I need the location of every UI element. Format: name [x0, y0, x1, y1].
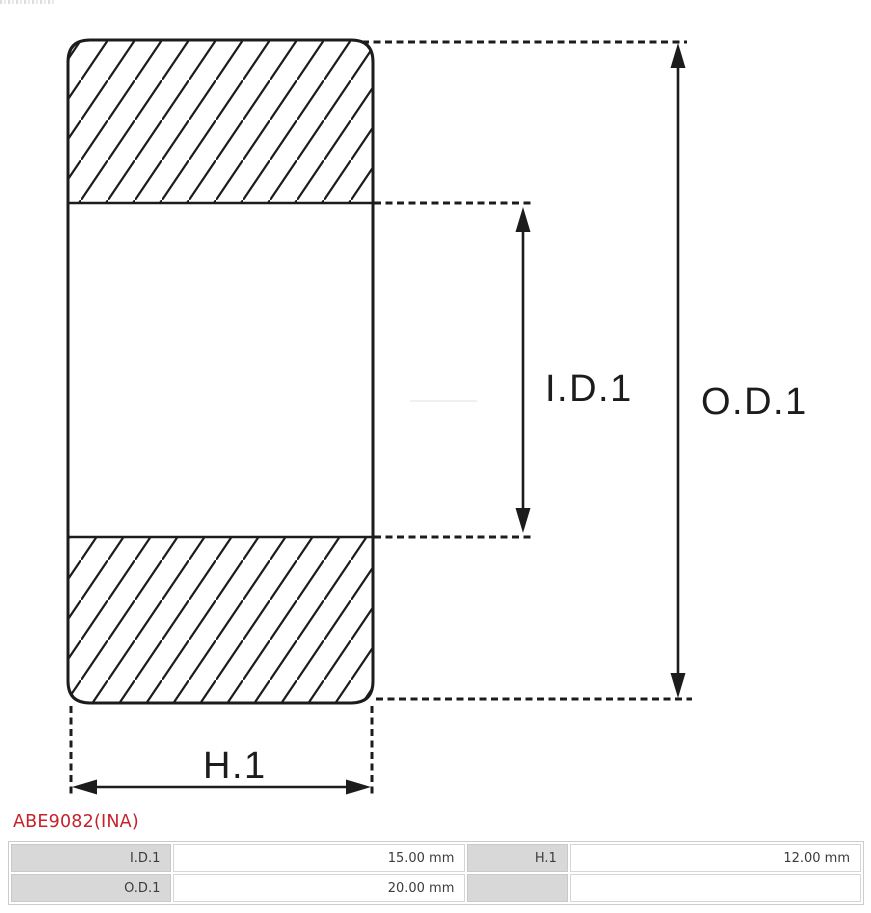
dimension-outer-diameter: O.D.1	[671, 43, 808, 698]
arrowhead-up-icon	[516, 207, 531, 232]
spec-table: I.D.1 15.00 mm H.1 12.00 mm O.D.1 20.00 …	[8, 841, 864, 905]
spec-label-od1: O.D.1	[11, 874, 171, 902]
height-label: H.1	[203, 745, 267, 787]
outer-diameter-label: O.D.1	[701, 381, 808, 423]
arrowhead-right-icon	[346, 780, 371, 795]
spec-value-empty	[570, 874, 861, 902]
inner-diameter-label: I.D.1	[545, 368, 633, 410]
dimension-height: H.1	[72, 745, 371, 795]
arrowhead-left-icon	[72, 780, 97, 795]
spec-table-container: I.D.1 15.00 mm H.1 12.00 mm O.D.1 20.00 …	[8, 841, 864, 905]
bearing-outer-ring-hatch	[68, 40, 373, 703]
arrowhead-down-icon	[516, 508, 531, 533]
part-number: ABE9082(INA)	[13, 812, 139, 832]
spec-label-id1: I.D.1	[11, 844, 171, 872]
table-row: O.D.1 20.00 mm	[11, 874, 861, 902]
arrowhead-up-icon	[671, 43, 686, 68]
spec-value-id1: 15.00 mm	[173, 844, 465, 872]
arrowhead-down-icon	[671, 673, 686, 698]
spec-value-od1: 20.00 mm	[173, 874, 465, 902]
spec-label-empty	[467, 874, 567, 902]
product-drawing-page: I.D.1 O.D.1 H.1 ABE9082(INA)	[0, 0, 871, 913]
spec-label-h1: H.1	[467, 844, 567, 872]
dimension-inner-diameter: I.D.1	[516, 207, 633, 533]
table-row: I.D.1 15.00 mm H.1 12.00 mm	[11, 844, 861, 872]
spec-value-h1: 12.00 mm	[570, 844, 861, 872]
bearing-diagram: I.D.1 O.D.1 H.1	[0, 0, 871, 810]
